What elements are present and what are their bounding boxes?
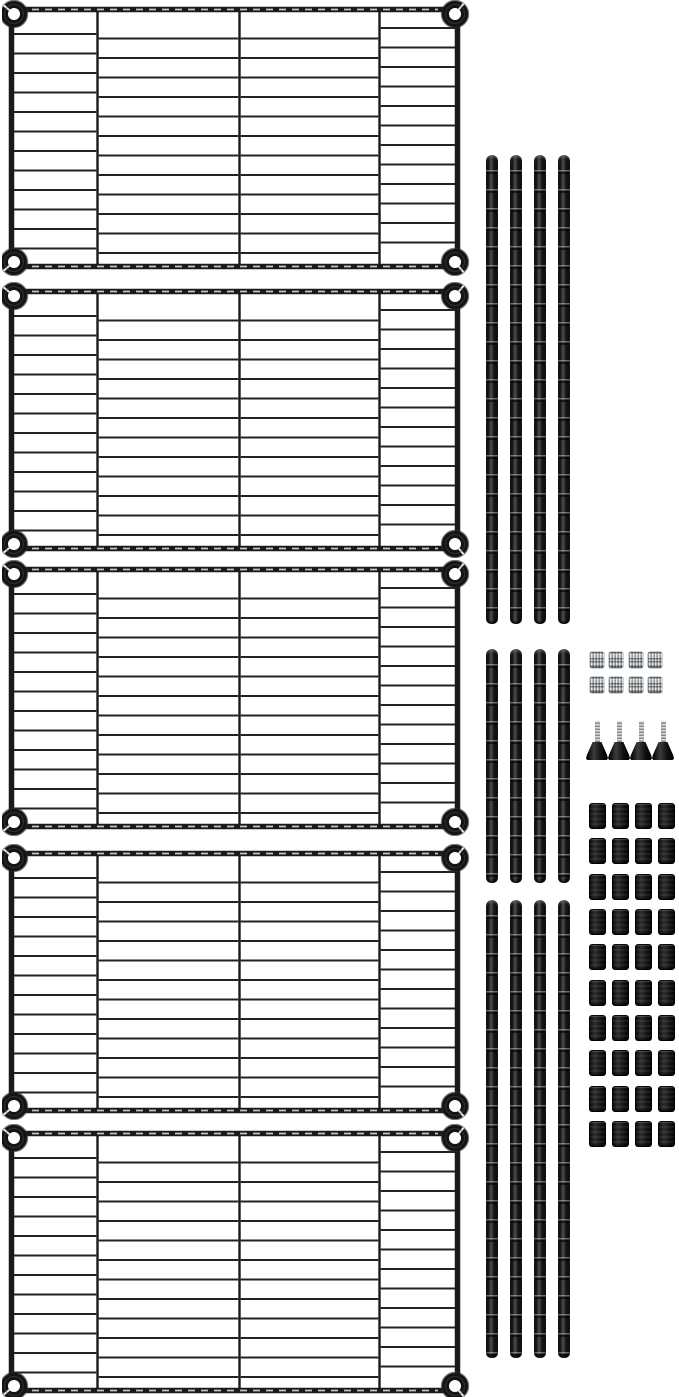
- coupling-nut: [609, 652, 623, 668]
- pole-section: [510, 649, 522, 883]
- product-photo-canvas: [0, 0, 679, 1397]
- wire-shelf: [2, 0, 472, 276]
- sleeve-clip: [658, 803, 675, 829]
- pole-section: [486, 900, 498, 1358]
- coupling-nut: [590, 652, 604, 668]
- sleeve-clip: [589, 980, 606, 1006]
- sleeve-clip: [635, 1050, 652, 1076]
- pole-section: [558, 900, 570, 1358]
- threaded-stud: [617, 721, 622, 743]
- sleeve-clip: [589, 909, 606, 935]
- pole-section: [534, 649, 546, 883]
- sleeve-clip: [635, 838, 652, 864]
- coupling-nut: [609, 677, 623, 693]
- sleeve-clip: [612, 1015, 629, 1041]
- sleeve-clip: [589, 1050, 606, 1076]
- sleeve-clip: [612, 874, 629, 900]
- threaded-stud: [639, 721, 644, 743]
- coupling-nut: [629, 652, 643, 668]
- pole-section: [558, 155, 570, 624]
- sleeve-clip: [658, 1050, 675, 1076]
- wire-shelf: [2, 1124, 472, 1397]
- sleeve-clip: [612, 1086, 629, 1112]
- sleeve-clip: [612, 1121, 629, 1147]
- sleeve-clip: [658, 980, 675, 1006]
- sleeve-clip: [658, 1015, 675, 1041]
- pole-section: [510, 900, 522, 1358]
- sleeve-clip: [658, 838, 675, 864]
- pole-section: [510, 155, 522, 624]
- coupling-nut: [629, 677, 643, 693]
- coupling-nut: [648, 652, 662, 668]
- foot-base: [608, 742, 630, 760]
- sleeve-clip: [612, 1050, 629, 1076]
- pole-section: [486, 155, 498, 624]
- sleeve-clip: [658, 1086, 675, 1112]
- sleeve-clip: [635, 909, 652, 935]
- sleeve-clip: [635, 1086, 652, 1112]
- leveling-foot: [630, 721, 652, 761]
- wire-shelf: [2, 844, 472, 1120]
- leveling-foot: [608, 721, 630, 761]
- sleeve-clip: [589, 803, 606, 829]
- sleeve-clip: [612, 909, 629, 935]
- threaded-stud: [595, 721, 600, 743]
- leveling-foot: [652, 721, 674, 761]
- pole-section: [534, 155, 546, 624]
- wire-shelf: [2, 560, 472, 836]
- sleeve-clip: [635, 944, 652, 970]
- sleeve-clip: [612, 838, 629, 864]
- sleeve-clip: [658, 909, 675, 935]
- sleeve-clip: [612, 803, 629, 829]
- sleeve-clip: [589, 838, 606, 864]
- sleeve-clip: [612, 980, 629, 1006]
- foot-base: [630, 742, 652, 760]
- sleeve-clip: [658, 944, 675, 970]
- leveling-foot: [586, 721, 608, 761]
- pole-section: [486, 649, 498, 883]
- sleeve-clip: [589, 944, 606, 970]
- coupling-nut: [590, 677, 604, 693]
- sleeve-clip: [589, 1086, 606, 1112]
- sleeve-clip: [612, 944, 629, 970]
- sleeve-clip: [589, 1015, 606, 1041]
- sleeve-clip: [589, 874, 606, 900]
- wire-shelf: [2, 282, 472, 558]
- sleeve-clip: [635, 980, 652, 1006]
- sleeve-clip: [635, 803, 652, 829]
- foot-base: [652, 742, 674, 760]
- foot-base: [586, 742, 608, 760]
- coupling-nut: [648, 677, 662, 693]
- sleeve-clip: [658, 1121, 675, 1147]
- sleeve-clip: [635, 1015, 652, 1041]
- threaded-stud: [661, 721, 666, 743]
- sleeve-clip: [589, 1121, 606, 1147]
- sleeve-clip: [658, 874, 675, 900]
- sleeve-clip: [635, 874, 652, 900]
- sleeve-clip: [635, 1121, 652, 1147]
- pole-section: [534, 900, 546, 1358]
- pole-section: [558, 649, 570, 883]
